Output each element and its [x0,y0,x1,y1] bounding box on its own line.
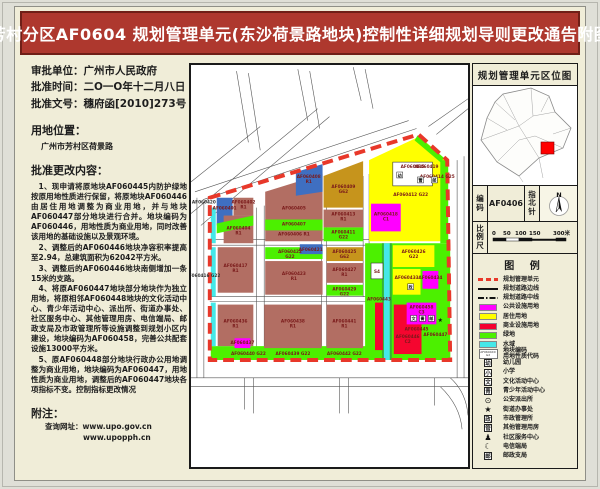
unit-code: AF0406 [488,186,525,221]
map-label: AF060420 [192,200,216,206]
parcel-label: AF060421 [299,247,323,253]
scale-bar-segment [556,238,566,241]
legend-item: 公共设施用地 [478,303,572,312]
facility-box-icon: 政 [484,415,492,423]
parcel-use-code: R1 [291,276,297,282]
parcel-use-code: R1 [341,272,347,278]
parcel-use-code: R1 [341,323,347,329]
parcel-label: AF060429G22 [332,287,356,298]
legend-label: 居住用地 [503,314,527,320]
north-arrow-icon: N [544,189,574,219]
scale-bar-segment [532,239,556,241]
legend-label: 公安派出所 [503,397,533,403]
parcel-use-code: G22 [340,292,349,298]
parcel-use-code: R1 [232,323,238,329]
main-plan-map: AF060409G62AF060405AF060408R1AF060407AF0… [189,63,470,469]
parcel-use-code: G62 [339,189,348,195]
landuse-color-swatch [479,323,497,330]
legend-item: ★街道办事处 [478,405,572,414]
legend-item: 绿地 [478,331,572,340]
facility-symbol: 幼 [398,172,402,178]
map-parcel [393,269,421,295]
approval-meta-row: 审批单位：广州市人民政府 [31,63,187,79]
parcel-code: AF060401 [213,206,237,212]
map-label: AF060440 G22 [231,351,266,357]
facility-glyph-icon: ★ [484,406,491,414]
facility-glyph-icon: ⊙ [485,397,492,405]
facility-box-icon: 邮 [484,452,492,460]
change-paragraph: 3、调整后的AF060446地块南侧增加一条15米的支路。 [31,264,187,284]
legend-label: 小学 [503,369,515,375]
map-label: AF060445 [405,326,429,332]
legend-title: 图 例 [478,257,572,272]
legend-label: 市政管理所 [503,416,533,422]
parcel-label: AF060405 [282,206,306,212]
map-road [450,378,468,416]
parcel-label: AF060407 [282,221,306,227]
parcel-use-code: G22 [285,254,294,260]
landuse-color-swatch [479,332,497,339]
scale-tick: 150 [529,231,541,237]
code-row: 编码 AF0406 指北针 N [473,186,577,222]
legend-label: 其他管理用房 [503,425,539,431]
legend-swatch-line [478,288,498,290]
legend-item: 管其他管理用房 [478,424,572,433]
notes-block: 附注： 查询网址：www.upo.gov.cn www.upopph.cn [31,405,187,444]
meta-label: 批准时间： [31,81,84,93]
legend-label: 绿地 [503,332,515,338]
scale-label: 比例尺 [473,222,488,253]
change-paragraph: 4、将原AF060447地块部分地块作为独立用地，将原相邻AF060448地块的… [31,284,187,354]
facility-symbol: 青 [420,315,424,321]
district-street [519,176,523,182]
landuse-color-swatch [479,313,497,320]
map-road [440,387,462,430]
map-label: AF060443 [367,297,391,303]
parcel-label: AF060437 [230,340,254,346]
parcel-code: AF060407 [282,221,306,227]
legend-item: 居住用地 [478,312,572,321]
parcel-label: S4 [374,269,380,275]
facility-box-icon: 青 [484,387,492,395]
parcel-use-code: R1 [240,205,246,211]
north-arrow-cell: N [540,186,577,221]
scale-bar-segment [506,238,519,241]
approval-meta: 审批单位：广州市人民政府批准时间：二O一O年十二月八日批准文号：穗府函[2010… [31,63,187,112]
vertical-label-char: 码 [476,204,484,213]
planning-unit-dash-icon [478,278,498,281]
map-road [298,69,308,120]
legend-label: 规划道路中线 [503,295,539,301]
map-label: AF060439 G22 [275,351,310,357]
legend-item: 商业设施用地 [478,321,572,330]
note-url-line-1: 查询网址：www.upo.gov.cn [45,421,187,432]
map-parcel [375,303,383,350]
scale-row: 比例尺 050100150300米 [473,222,577,254]
legend-label: 社区服务中心 [503,435,539,441]
unit-location-marker [541,142,554,154]
parcel-code: S4 [374,269,380,275]
map-road [237,71,249,142]
legend-item: 邮邮政支局 [478,452,572,461]
parcel-code: AF060437 [230,340,254,346]
legend-swatch-codebox: AF0604XXG2 [478,349,498,359]
note-heading: 附注： [31,405,187,421]
district-outline [481,88,571,176]
approved-changes-paragraphs: 1、现申请将原地块AF060445内防护绿地按原用地性质进行保留，将原地块AF0… [31,182,187,395]
vertical-label-char: 针 [528,208,536,217]
parcel-use-code: R1 [232,268,238,274]
map-label: AF060416 G22 [191,273,220,279]
map-road [310,71,320,128]
landuse-color-swatch [479,341,497,348]
map-label: AF060406 R1 [278,231,310,237]
scale-tick: 300米 [553,229,570,237]
note-url-1[interactable]: www.upo.gov.cn [83,422,152,431]
parcel-code: AF060405 [282,206,306,212]
change-paragraph: 2、调整后的AF060446地块净容积率提高至2.94，总建筑面积为62042平… [31,243,187,263]
legend-swatch-dashdot [478,297,498,299]
landuse-color-swatch [479,304,497,311]
legend-item: ⊙公安派出所 [478,396,572,405]
scale-bar: 050100150300米 [491,228,575,248]
legend-item: ♟社区服务中心 [478,433,572,442]
legend-swatch-boxchar: 青 [478,387,498,395]
document-title: 芳村分区AF0604 规划管理单元(东沙荷景路地块)控制性详细规划导则更改通告附… [0,21,600,45]
map-label: AF060412 G22 [393,192,428,198]
map-road [365,69,373,109]
compass-label: 指北针 [525,186,540,221]
facility-box-icon: 幼 [484,359,492,367]
legend-swatch-glyph: ♟ [478,434,498,442]
location-map-svg [473,86,577,184]
meta-label: 审批单位： [31,65,84,77]
parcel-label: AF060401 [213,206,237,212]
road-center-line-icon [478,297,498,299]
legend-swatch-boxchar: 管 [478,424,498,432]
approval-meta-row: 批准文号：穗府函[2010]273号 [31,96,187,112]
legend-label: 青少年活动中心 [503,388,545,394]
legend-item: 青青少年活动中心 [478,387,572,396]
parcel-codebox-icon: AF0604XXG2 [479,349,498,359]
facility-box-icon: 小 [484,369,492,377]
parcel-use-code: G22 [409,254,418,260]
left-text-column: 审批单位：广州市人民政府批准时间：二O一O年十二月八日批准文号：穗府函[2010… [31,63,187,469]
parcel-code: AF060434 [418,275,442,281]
legend-item: 规划道路中线 [478,294,572,303]
legend-swatch-dash-red [478,278,498,281]
legend-item: 文文化活动中心 [478,377,572,386]
location-map [473,86,577,186]
legend-swatch-fill [478,313,498,320]
scale-tick: 50 [503,231,511,237]
scale-bar-segment [493,238,506,241]
map-label: AF060442 G22 [327,351,362,357]
map-road [353,67,361,101]
legend-item: AF0604XXG2地块编码用地性质代码 [478,349,572,358]
location-map-title: 规划管理单元区位图 [473,64,577,86]
legend-label: 规划管理单元 [503,277,539,283]
map-road [428,99,468,127]
legend-label: 商业设施用地 [503,323,539,329]
map-road [436,109,468,135]
legend-swatch-boxchar: 小 [478,369,498,377]
district-street [539,158,543,178]
legend-items: 规划管理单元规划道路边线规划道路中线公共设施用地居住用地商业设施用地绿地水域AF… [478,275,572,461]
parcel-use-code: R1 [340,216,346,222]
parcel-use-code: C1 [383,216,389,222]
legend-item: ☾电信端局 [478,442,572,451]
legend-swatch-boxchar: 政 [478,415,498,423]
parcel-use-code: C2 [405,339,411,345]
legend-label: 幼儿园 [503,360,521,366]
note-url-line-2: www.upopph.cn [83,432,187,443]
facility-glyph-icon: ☾ [484,443,491,451]
change-paragraph: 1、现申请将原地块AF060445内防护绿地按原用地性质进行保留，将原地块AF0… [31,182,187,242]
scale-tick: 0 [492,231,496,237]
legend-swatch-fill [478,304,498,311]
scale-bar-segment [519,238,532,241]
legend-item: 政市政管理所 [478,414,572,423]
facility-glyph-icon: ♟ [484,434,491,442]
legend-swatch-boxchar: 幼 [478,359,498,367]
document-title-banner: 芳村分区AF0604 规划管理单元(东沙荷景路地块)控制性详细规划导则更改通告附… [20,11,580,55]
parcel-use-code: C3 [418,309,424,315]
legend-swatch-fill [478,323,498,330]
legend-swatch-boxchar: 邮 [478,452,498,460]
right-info-column: 规划管理单元区位图 编码 AF0406 指北针 N 比例尺 0501001503… [472,63,578,469]
meta-value: 穗府函[2010]273号 [84,98,187,110]
codebox-bottom: G2 [486,354,490,357]
content-heading: 批准更改内容： [31,162,187,178]
scale-tick: 100 [515,231,527,237]
parcel-label: AF060433 [395,275,419,281]
legend: 图 例 规划管理单元规划道路边线规划道路中线公共设施用地居住用地商业设施用地绿地… [473,254,577,468]
legend-swatch-fill [478,332,498,339]
facility-symbol: 管 [418,177,422,183]
parcel-code: AF060421 [299,247,323,253]
parcel-use-code: G62 [340,254,349,260]
meta-value: 二O一O年十二月八日 [84,81,186,93]
legend-swatch-fill [478,341,498,348]
code-label: 编码 [473,186,488,221]
facility-symbol: ★ [438,317,443,324]
plan-map-svg: AF060409G62AF060405AF060408R1AF060407AF0… [191,65,468,467]
meta-label: 批准文号： [31,98,84,110]
map-road [248,73,260,150]
legend-label: 公共设施用地 [503,304,539,310]
legend-item: 小小学 [478,368,572,377]
parcel-use-code: R1 [306,179,312,185]
facility-box-icon: 管 [484,424,492,432]
map-label: AF060447 [423,332,447,338]
legend-item: 规划道路边线 [478,284,572,293]
parcel-use-code: R1 [235,230,241,236]
road-edge-line-icon [478,288,498,290]
parcel-code: AF060433 [395,275,419,281]
parcel-label: AF060434 [418,275,442,281]
vertical-label-char: 尺 [476,242,484,251]
change-paragraph: 5、原AF060448部分地块行政办公用地调整为商业用地，地块编码为AF0604… [31,355,187,395]
scale-bar-cell: 050100150300米 [488,222,577,253]
legend-swatch-boxchar: 文 [478,378,498,386]
note-url-label: 查询网址： [45,422,83,431]
legend-label: 文化活动中心 [503,379,539,385]
legend-label: 规划道路边线 [503,286,539,292]
legend-label: 街道办事处 [503,407,533,413]
parcel-use-code: R1 [290,323,296,329]
legend-item: 规划管理单元 [478,275,572,284]
legend-label: 邮政支局 [503,453,527,459]
parcel-use-code: G22 [339,234,348,240]
legend-swatch-glyph: ⊙ [478,397,498,405]
map-label: AF060419 [414,164,438,170]
legend-swatch-glyph: ☾ [478,443,498,451]
facility-box-icon: 文 [484,378,492,386]
location-value: 广州市芳村区荷景路 [41,141,187,152]
note-url-2[interactable]: www.upopph.cn [83,433,151,442]
legend-swatch-glyph: ★ [478,406,498,414]
legend-label: 电信端局 [503,444,527,450]
approval-meta-row: 批准时间：二O一O年十二月八日 [31,79,187,95]
document-sheet: 芳村分区AF0604 规划管理单元(东沙荷景路地块)控制性详细规划导则更改通告附… [14,6,586,481]
location-heading: 用地位置： [31,122,187,138]
meta-value: 广州市人民政府 [84,65,158,77]
